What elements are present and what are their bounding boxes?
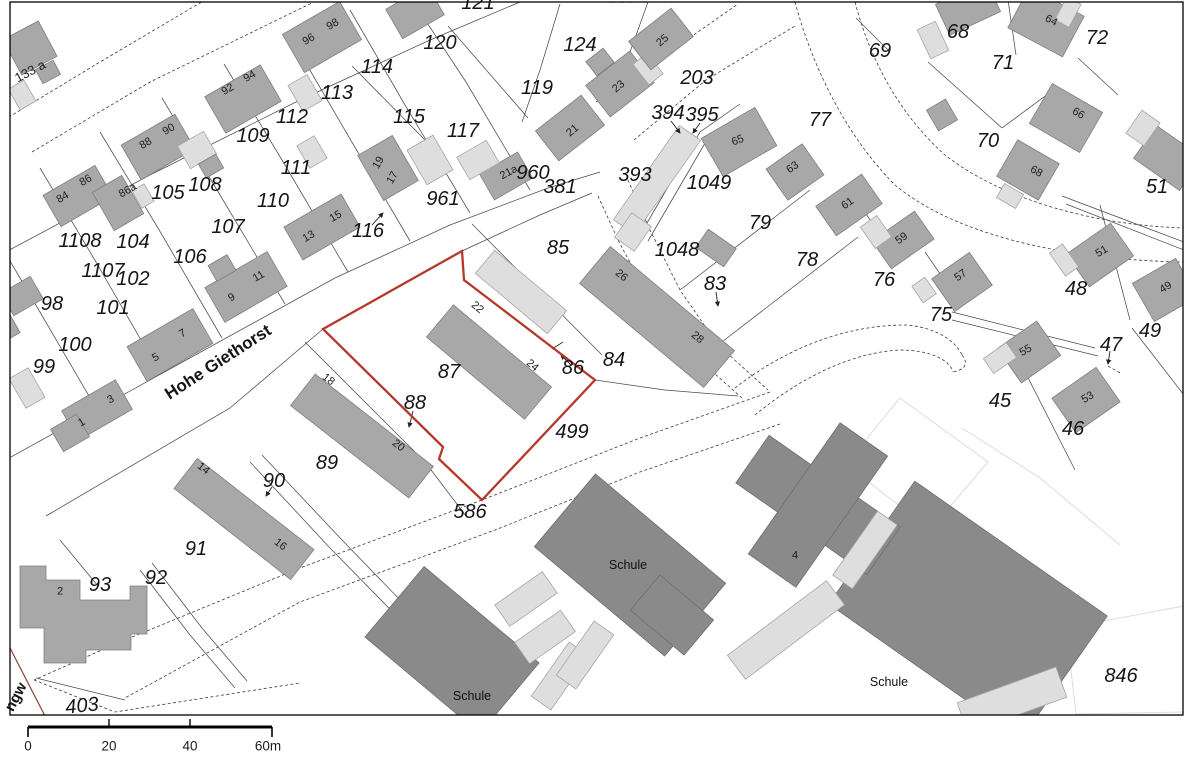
label-arrow	[1108, 351, 1110, 364]
map-canvas	[0, 0, 1200, 767]
building	[205, 65, 281, 133]
building	[1132, 258, 1197, 321]
road-edge	[34, 680, 300, 712]
parcel-line	[140, 570, 235, 688]
label-arrow	[693, 123, 700, 133]
building	[535, 95, 604, 161]
building	[174, 458, 314, 579]
parcel-line	[1078, 58, 1118, 95]
parcel-line	[36, 678, 125, 700]
annex-building	[917, 21, 949, 58]
annex-building	[288, 75, 322, 112]
cadastral-map: 1201211241191151171141131121091111101051…	[0, 0, 1200, 767]
road-edge	[735, 325, 962, 388]
building	[386, 0, 445, 39]
annex-building	[613, 125, 700, 234]
parcel-line	[1132, 328, 1184, 395]
parcel-line	[680, 190, 810, 290]
building	[358, 135, 419, 200]
building	[282, 1, 361, 72]
label-arrow	[266, 487, 272, 496]
school-building	[365, 567, 539, 734]
building	[284, 194, 360, 260]
parcel-line	[595, 380, 738, 396]
building	[932, 252, 993, 311]
building	[1052, 367, 1120, 432]
parcel-line	[448, 26, 528, 118]
label-arrow	[716, 292, 718, 306]
annex-building	[912, 277, 937, 303]
building	[696, 229, 736, 267]
parcel-line	[462, 193, 592, 251]
building	[926, 99, 957, 131]
building	[766, 144, 824, 200]
annex-building	[475, 250, 566, 333]
annex-building	[727, 581, 844, 680]
parcel-line	[152, 563, 247, 681]
road-edge	[1108, 366, 1122, 374]
annex-building	[495, 572, 557, 627]
label-arrow	[372, 213, 383, 225]
parcel-line	[718, 237, 858, 345]
building	[1066, 223, 1133, 287]
parcel-line	[522, 4, 560, 122]
building	[291, 374, 434, 498]
annex-building	[9, 368, 45, 408]
building	[1, 276, 43, 316]
building	[935, 0, 1000, 35]
scale-bar	[28, 719, 272, 737]
building	[20, 566, 147, 663]
building	[701, 107, 777, 176]
buildings-layer	[0, 0, 1200, 739]
annex-building	[8, 80, 36, 110]
parcel-line	[1062, 196, 1184, 242]
building	[1029, 84, 1102, 153]
road-edge	[953, 355, 965, 372]
road-edge	[755, 350, 953, 415]
parcel-line	[856, 18, 890, 52]
building	[580, 247, 735, 388]
annex-building	[297, 136, 327, 169]
parcel-line	[60, 540, 98, 586]
building	[127, 309, 213, 382]
